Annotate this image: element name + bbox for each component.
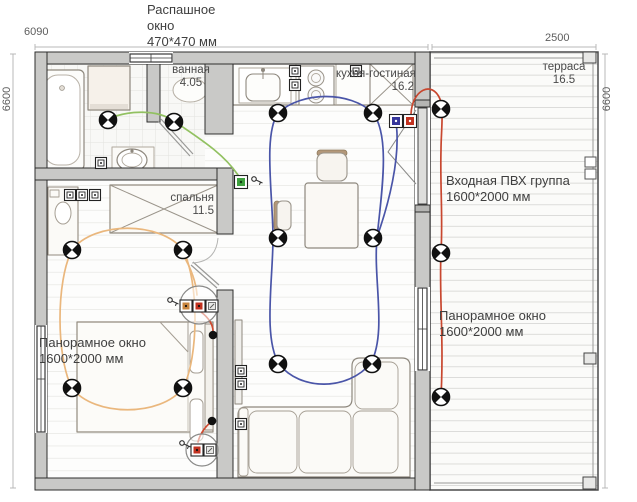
kitchen-sink: [239, 68, 291, 103]
terrace-post: [584, 353, 596, 364]
bedroom-area: 11.5: [158, 205, 214, 218]
panoramic-window-bedroom-line2: 1600*2000 мм: [39, 351, 146, 367]
entry-door-label-line1: Входная ПВХ группа: [446, 173, 570, 189]
ceiling-light-icon: [270, 230, 287, 247]
ceiling-light-icon: [270, 356, 287, 373]
socket-red-icon: [193, 300, 205, 312]
swing-window-label-line1: Распашное: [147, 2, 217, 18]
ceiling-light-icon: [433, 101, 450, 118]
terrace-post: [585, 157, 596, 167]
terrace-name: терраса: [538, 61, 590, 74]
socket-red-icon: [191, 444, 203, 456]
kitchen-living-area: 16.2: [336, 81, 414, 94]
socket-icon: [290, 66, 301, 77]
bedroom-name: спальня: [158, 192, 214, 205]
socket-icon: [290, 80, 301, 91]
socket-icon: [65, 190, 76, 201]
switch-gray-icon: [206, 300, 218, 312]
panoramic-window-terrace-line1: Панорамное окно: [439, 308, 546, 324]
panoramic-window-bedroom-label: Панорамное окно 1600*2000 мм: [39, 335, 146, 367]
socket-icon: [236, 366, 247, 377]
pillow: [190, 331, 203, 373]
swing-window: [129, 52, 173, 64]
wall-top: [35, 52, 430, 64]
ceiling-light-icon: [365, 105, 382, 122]
socket-icon: [96, 158, 107, 169]
wall-bedroom-living-upper: [217, 168, 233, 234]
swing-window-label-line2: окно: [147, 18, 217, 34]
socket-icon: [236, 379, 247, 390]
panoramic-window-bedroom-line1: Панорамное окно: [39, 335, 146, 351]
swing-window-label: Распашное окно 470*470 мм: [147, 2, 217, 50]
switch-green-icon: [235, 176, 248, 189]
dimension-left-side: 6600: [1, 78, 15, 120]
switch-red-icon: [404, 115, 417, 128]
dimension-right-side: 6600: [601, 78, 615, 120]
terrace-deck: [430, 52, 598, 490]
dimension-top-left: 6090: [24, 26, 48, 38]
terrace-label: терраса 16.5: [538, 61, 590, 87]
ceiling-light-icon: [433, 389, 450, 406]
wall-bedroom-living-lower: [217, 290, 233, 478]
ceiling-light-icon: [365, 230, 382, 247]
wall-bathroom-bedroom: [35, 168, 218, 180]
socket-icon: [77, 190, 88, 201]
ceiling-light-icon: [100, 112, 117, 129]
washing-machine: [88, 66, 130, 110]
socket-tan-icon: [180, 300, 192, 312]
bathroom-label: ванная 4.05: [162, 64, 220, 90]
ceiling-light-icon: [364, 356, 381, 373]
ceiling-light-icon: [64, 380, 81, 397]
bathroom-name: ванная: [162, 64, 220, 77]
socket-icon: [236, 419, 247, 430]
socket-icon: [90, 190, 101, 201]
panoramic-window-terrace-line2: 1600*2000 мм: [439, 324, 546, 340]
ceiling-light-icon: [270, 105, 287, 122]
bathroom-sink: [112, 147, 154, 171]
terrace-area: 16.5: [538, 74, 590, 87]
panoramic-window-terrace: [415, 287, 430, 371]
floor-plan: Распашное окно 470*470 мм 6090 2500 6600…: [0, 0, 637, 502]
switch-blue-icon: [390, 115, 403, 128]
sconce-icon: [209, 331, 218, 340]
terrace-post: [583, 477, 596, 489]
entry-door-label-line2: 1600*2000 мм: [446, 189, 570, 205]
tv-console: [235, 320, 242, 404]
ceiling-light-icon: [175, 380, 192, 397]
switch-gray-icon: [204, 444, 216, 456]
ceiling-light-icon: [166, 114, 183, 131]
bathroom-area: 4.05: [162, 77, 220, 90]
chair: [317, 153, 347, 181]
chair: [277, 201, 291, 230]
dimension-top-right: 2500: [545, 32, 569, 44]
ceiling-light-icon: [175, 242, 192, 259]
panoramic-window-terrace-label: Панорамное окно 1600*2000 мм: [439, 308, 546, 340]
sconce-icon: [208, 417, 217, 426]
terrace-post: [585, 169, 596, 179]
kitchen-living-label: кухня-гостиная 16.2: [336, 68, 414, 94]
entry-door-label: Входная ПВХ группа 1600*2000 мм: [446, 173, 570, 205]
ceiling-light-icon: [433, 245, 450, 262]
swing-window-label-line3: 470*470 мм: [147, 34, 217, 50]
bedroom-label: спальня 11.5: [158, 192, 214, 218]
kitchen-living-name: кухня-гостиная: [336, 68, 414, 81]
ceiling-light-icon: [64, 242, 81, 259]
wall-bottom: [35, 478, 430, 490]
